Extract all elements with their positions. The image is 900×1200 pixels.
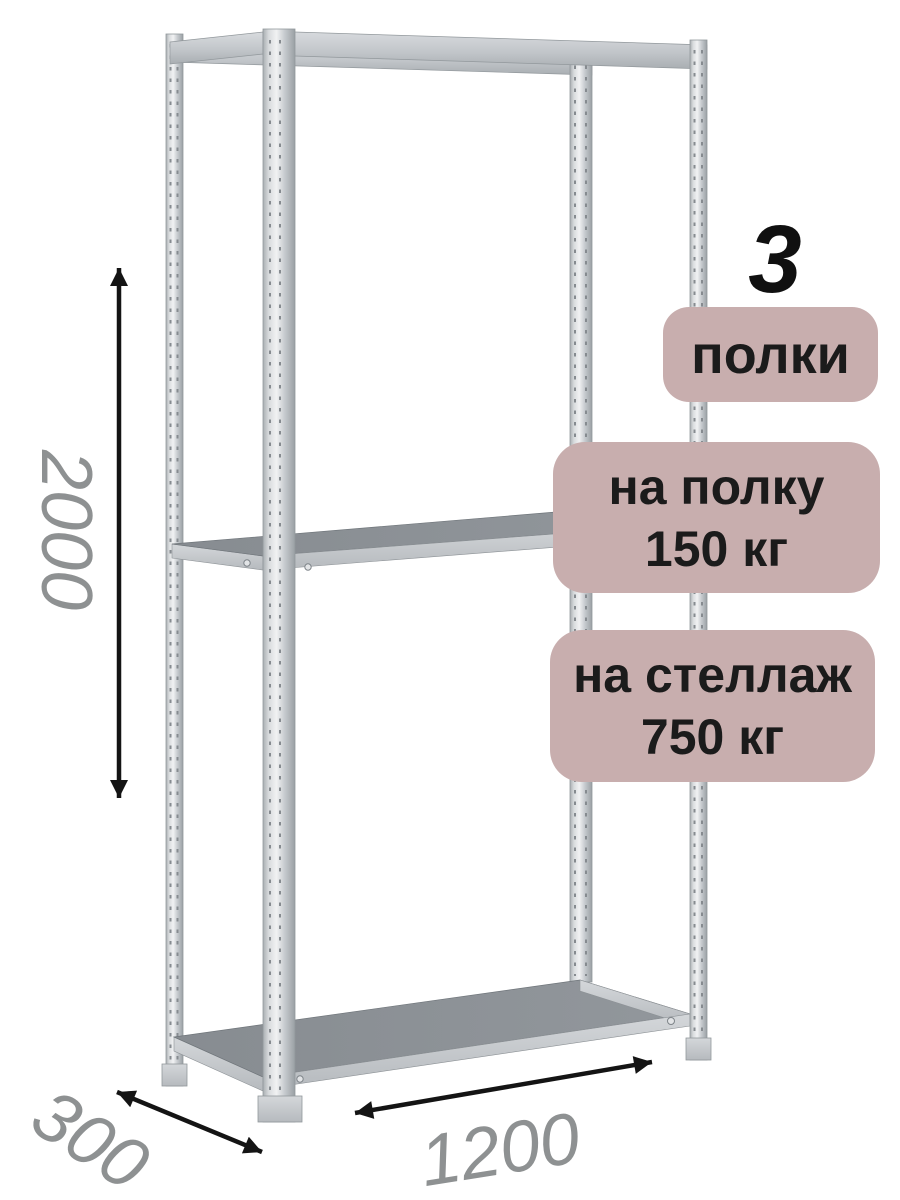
shelf-count-unit-label: полки [691, 324, 850, 386]
product-image-canvas: 2000 300 1200 3 полки на полку 150 кг на… [0, 0, 900, 1200]
rack-post-front-left [258, 29, 302, 1122]
per-shelf-load-value: 150 кг [645, 518, 788, 580]
shelf-count-badge: полки [663, 307, 878, 402]
per-rack-load-label: на стеллаж [573, 644, 852, 706]
width-dimension-arrow [355, 1062, 652, 1113]
shelving-rack-illustration: 2000 300 1200 [0, 0, 900, 1200]
per-rack-load-badge: на стеллаж 750 кг [550, 630, 875, 782]
per-shelf-load-label: на полку [609, 456, 825, 518]
depth-dimension-label: 300 [18, 1074, 162, 1200]
width-dimension-label: 1200 [415, 1098, 586, 1200]
height-dimension-label: 2000 [26, 449, 106, 610]
rack-post-back-left [162, 34, 187, 1086]
shelf-count-number: 3 [720, 210, 830, 310]
rack-shelf-bottom [174, 980, 690, 1091]
per-shelf-load-badge: на полку 150 кг [553, 442, 880, 593]
per-rack-load-value: 750 кг [641, 706, 784, 768]
